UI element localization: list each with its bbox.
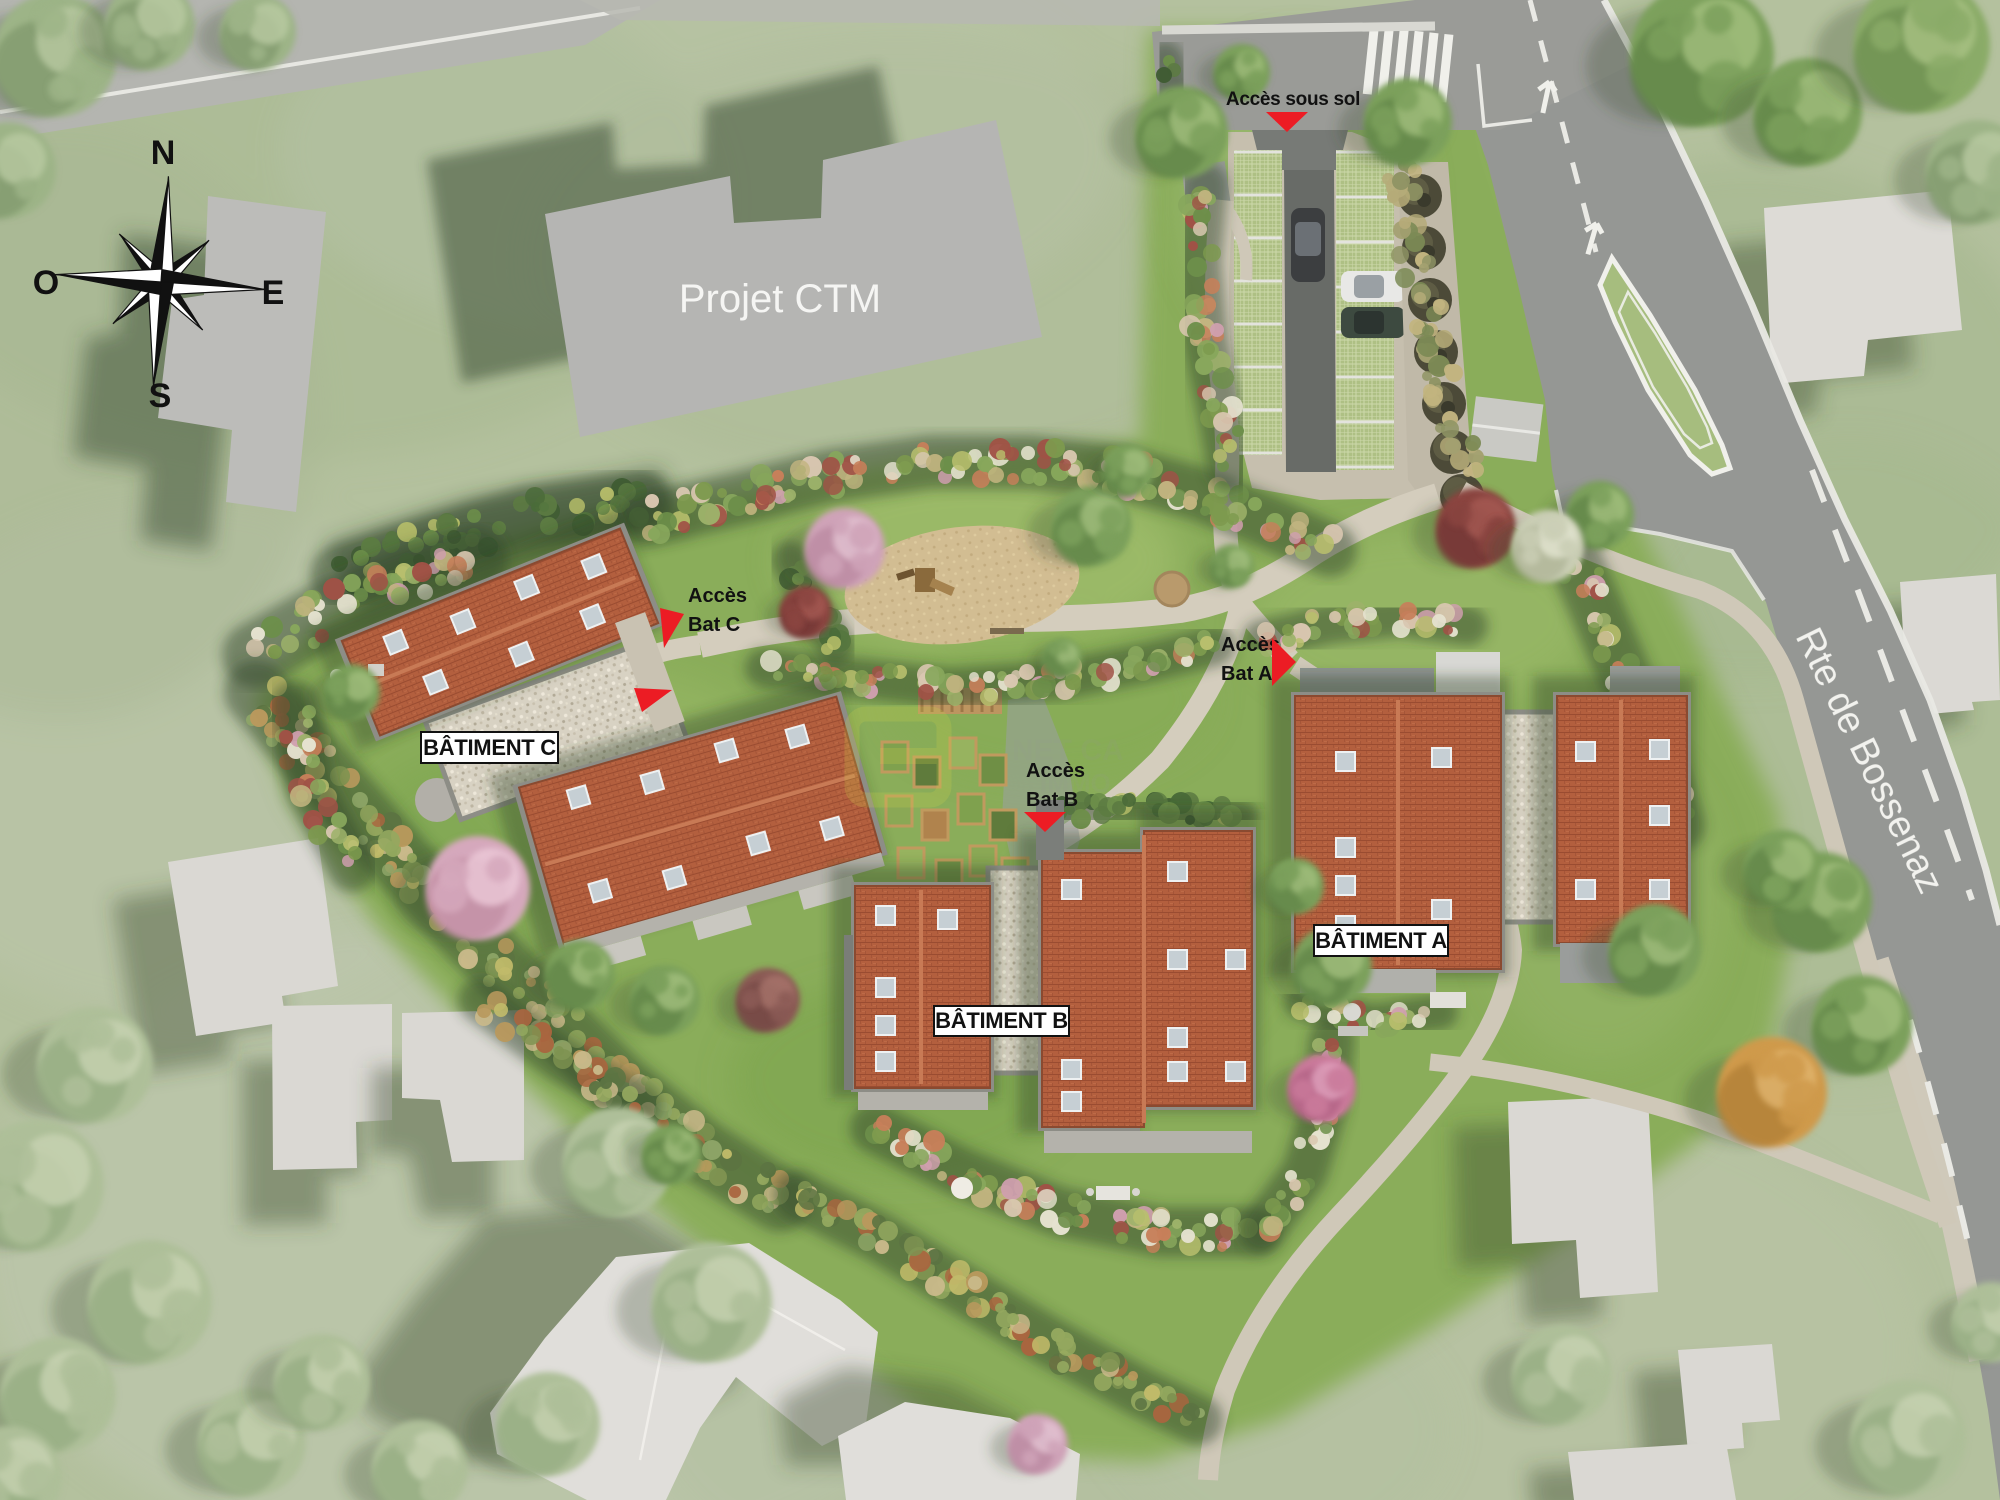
svg-text:E: E <box>262 274 285 312</box>
svg-text:BÂTIMENT B: BÂTIMENT B <box>935 1008 1068 1033</box>
svg-text:Projet CTM: Projet CTM <box>679 277 881 321</box>
svg-text:Bat C: Bat C <box>688 614 740 636</box>
svg-text:Accès: Accès <box>688 585 747 607</box>
svg-text:Accès sous sol: Accès sous sol <box>1226 89 1360 110</box>
svg-text:Accès: Accès <box>1221 634 1280 656</box>
svg-text:BÂTIMENT A: BÂTIMENT A <box>1315 928 1447 953</box>
svg-text:Bat B: Bat B <box>1026 789 1078 811</box>
svg-text:O: O <box>33 264 59 302</box>
svg-text:N: N <box>151 134 176 172</box>
svg-text:S: S <box>149 377 172 415</box>
svg-text:Accès: Accès <box>1026 760 1085 782</box>
svg-text:BÂTIMENT C: BÂTIMENT C <box>423 735 556 760</box>
svg-text:Bat A: Bat A <box>1221 663 1272 685</box>
